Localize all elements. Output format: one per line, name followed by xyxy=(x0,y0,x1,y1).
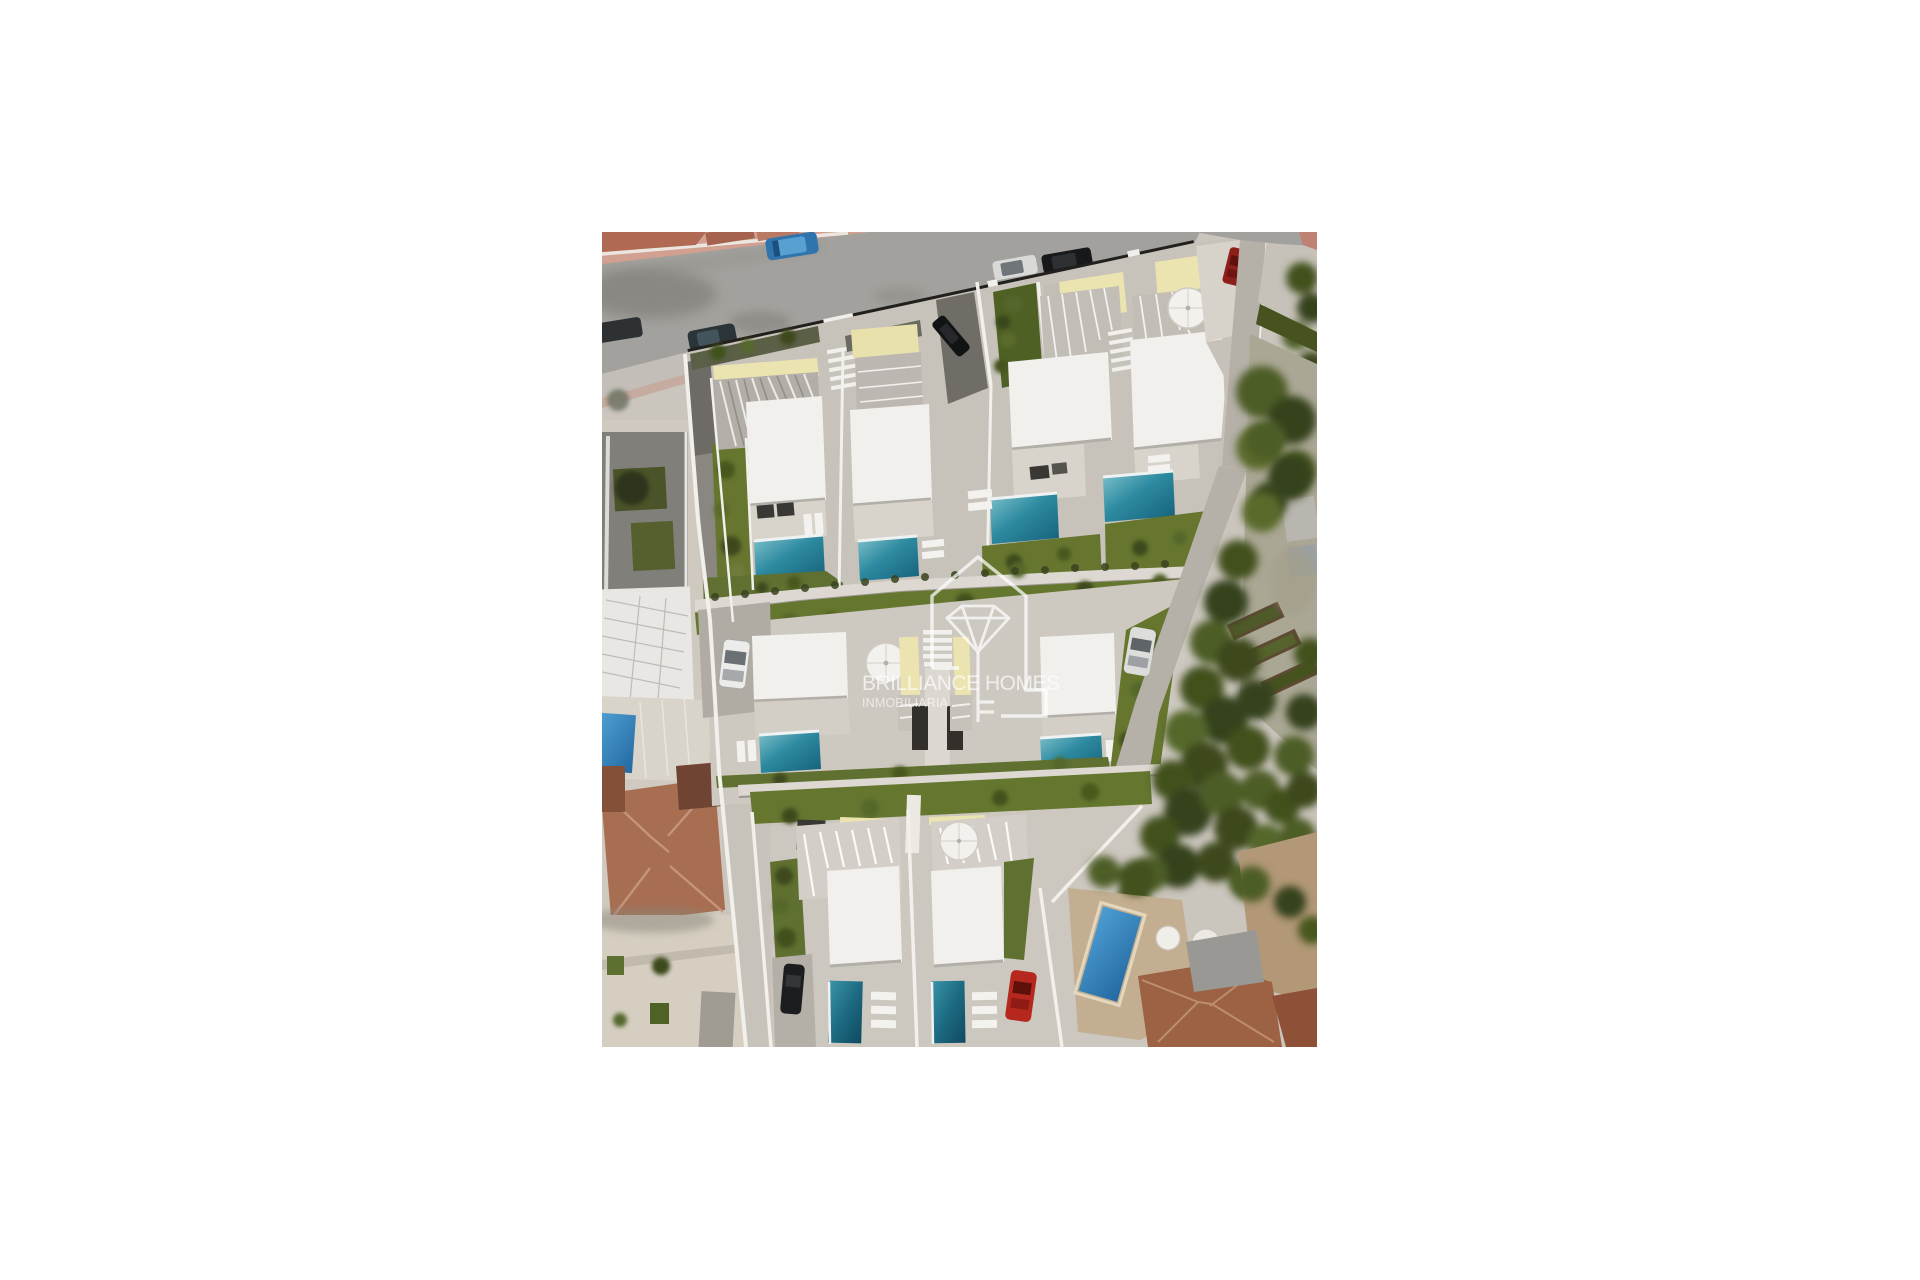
svg-text:BRILLIANCE HOMES: BRILLIANCE HOMES xyxy=(862,672,1062,695)
svg-text:INMOBILIARIA: INMOBILIARIA xyxy=(862,696,950,710)
